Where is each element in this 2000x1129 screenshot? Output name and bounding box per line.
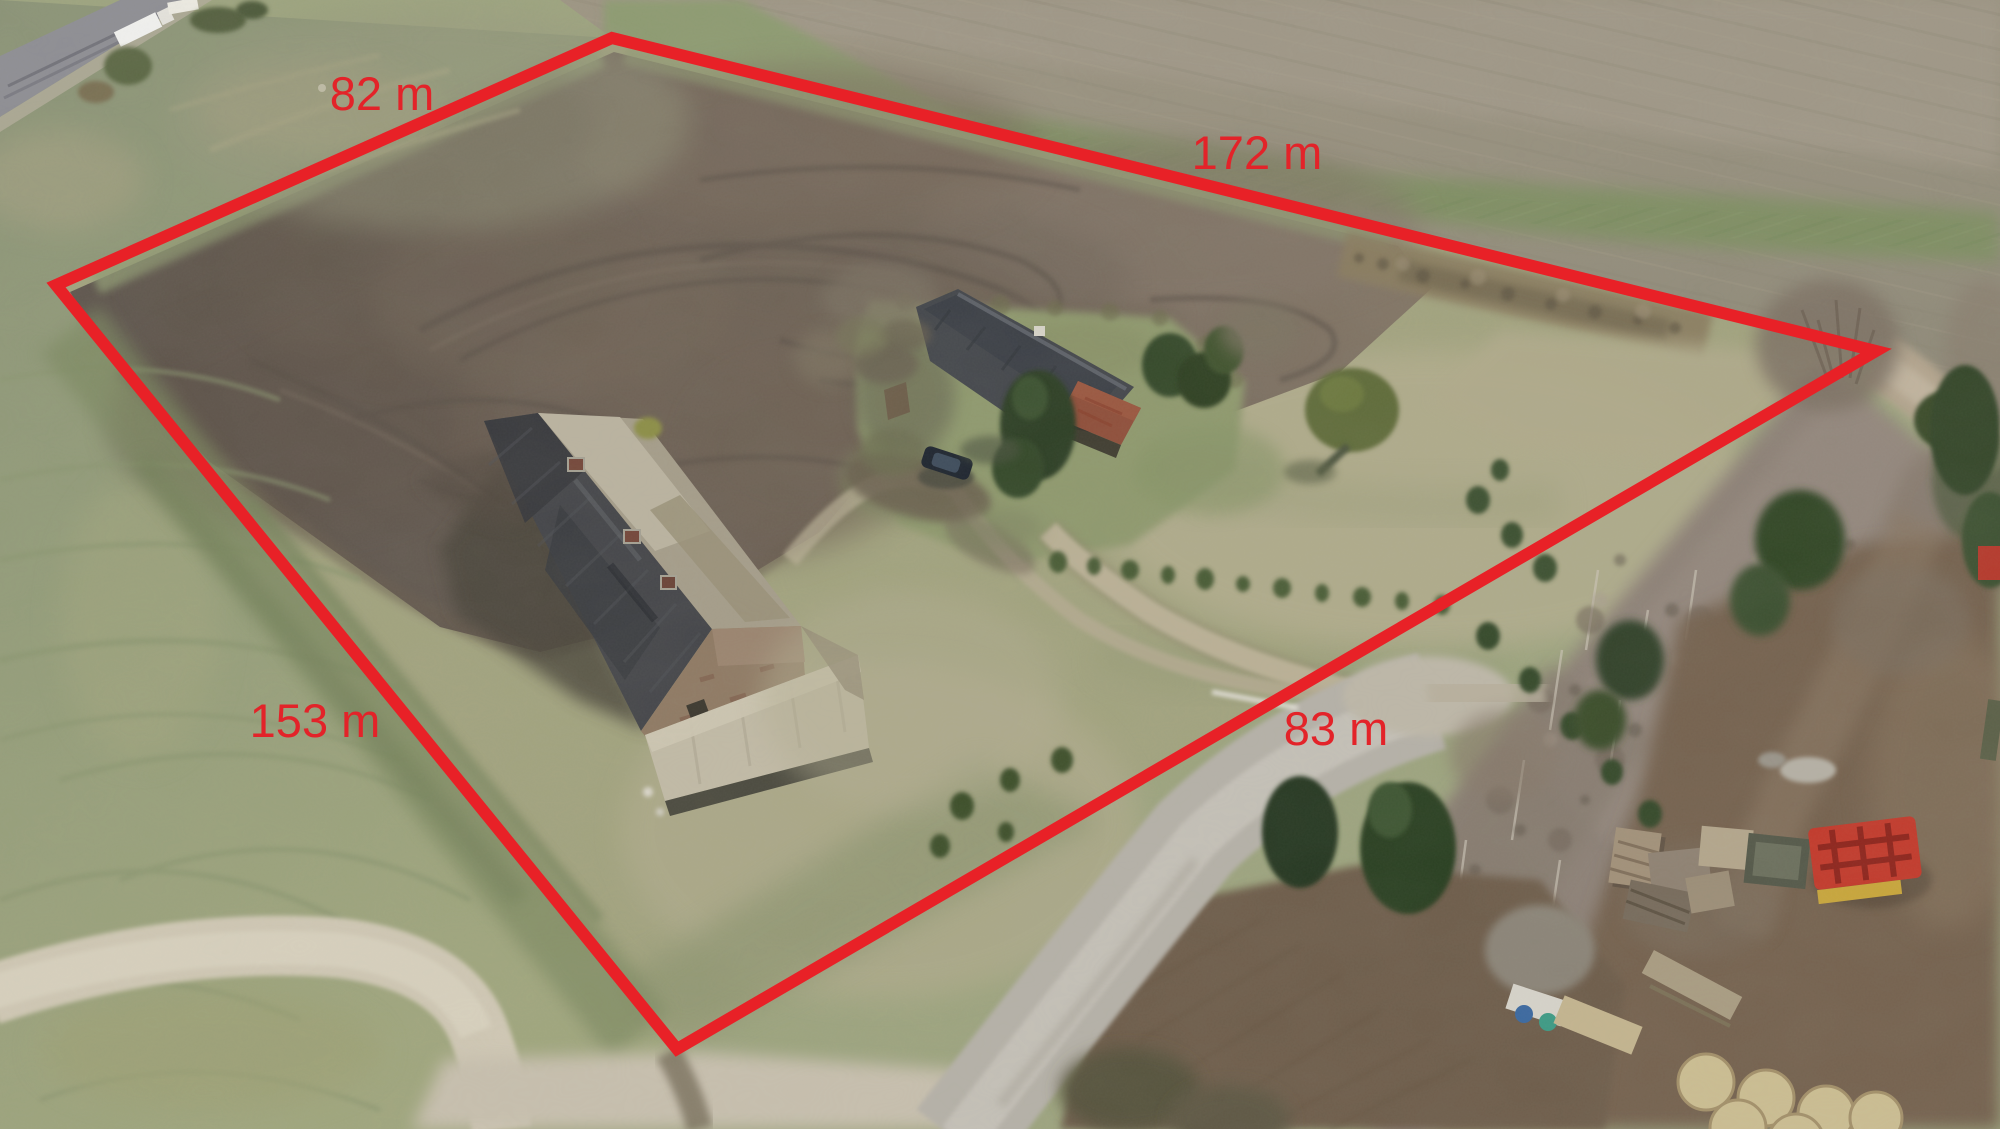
svg-text:83 m: 83 m [1284, 702, 1389, 755]
svg-text:172 m: 172 m [1192, 126, 1323, 179]
svg-text:153 m: 153 m [250, 694, 381, 747]
svg-text:82 m: 82 m [330, 67, 435, 120]
